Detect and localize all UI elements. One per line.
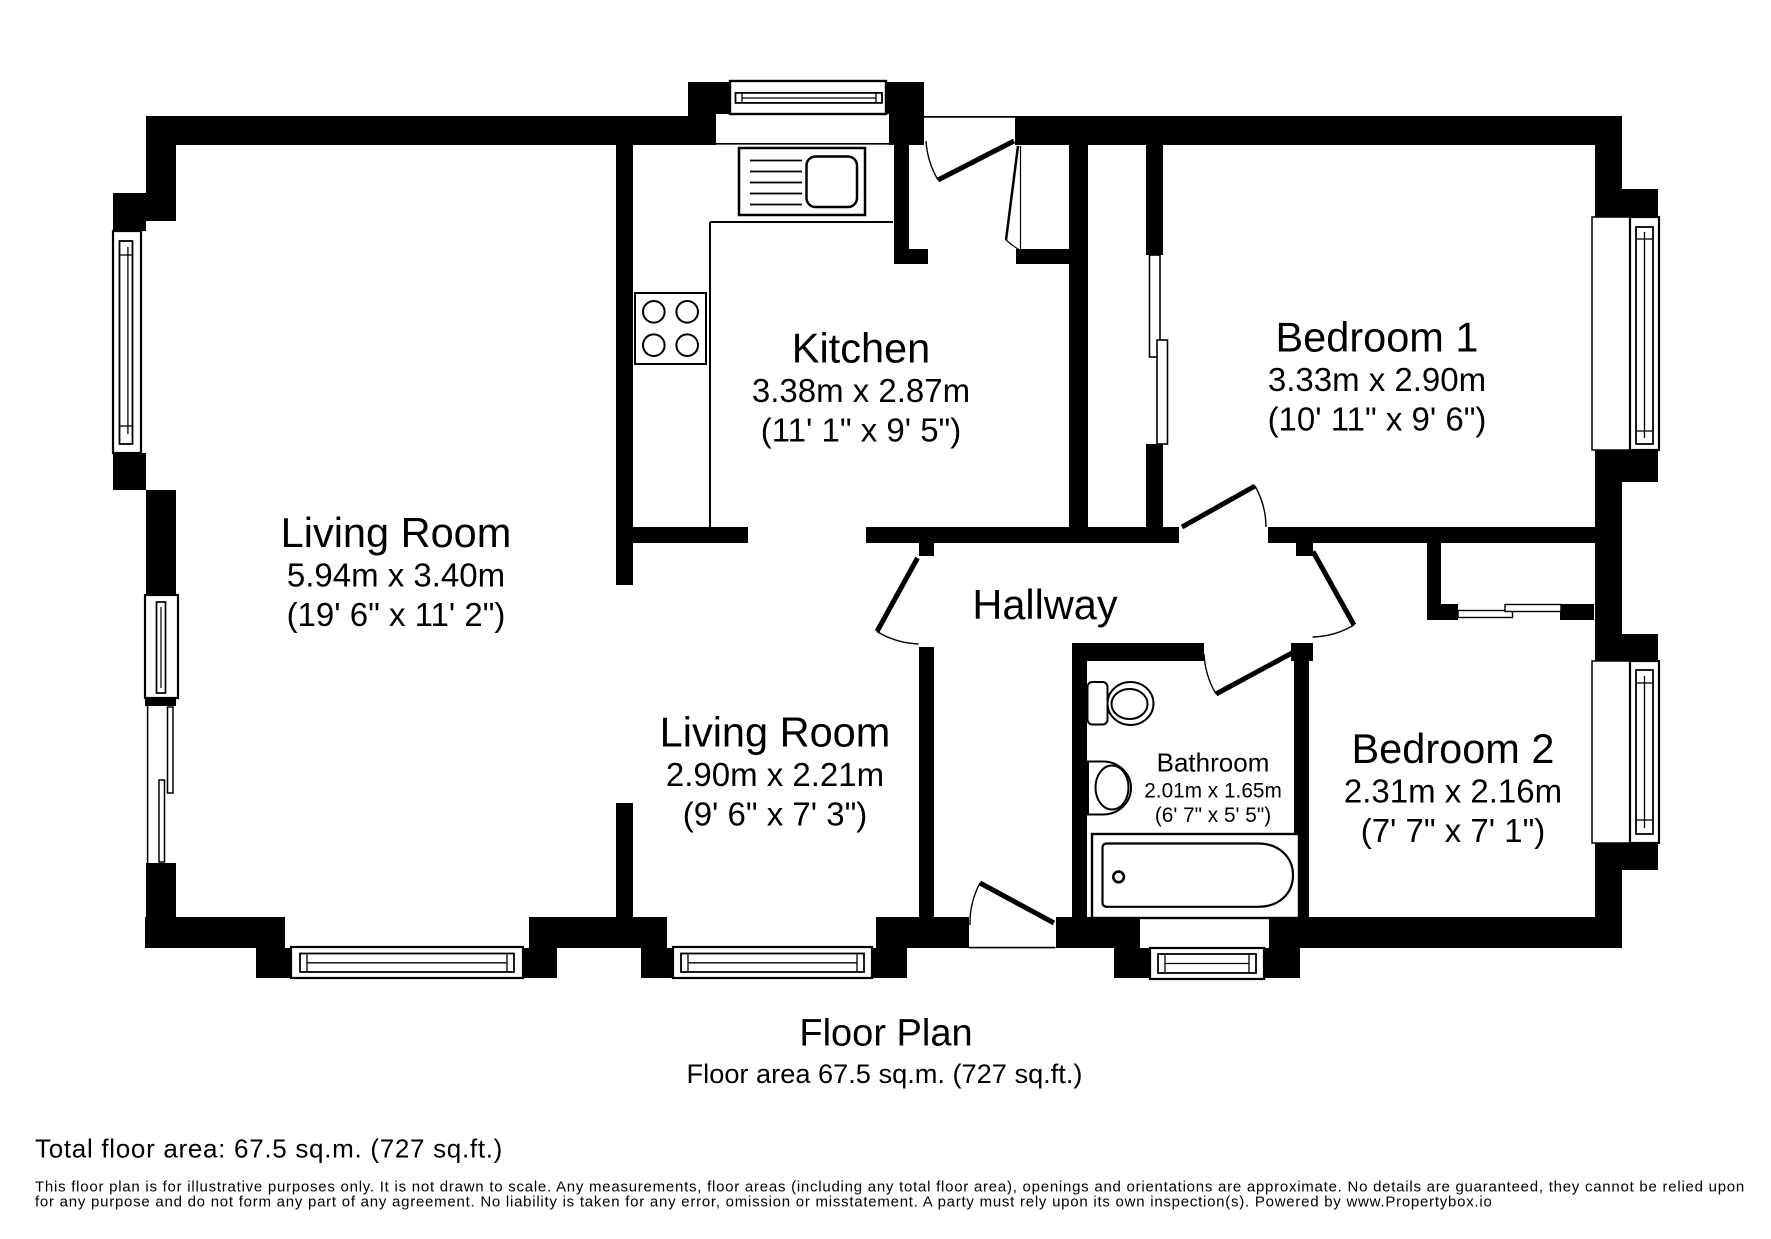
svg-text:Floor Plan: Floor Plan [799, 1013, 972, 1055]
svg-text:Kitchen: Kitchen [792, 325, 930, 372]
svg-text:5.94m x 3.40m: 5.94m x 3.40m [287, 557, 505, 594]
svg-text:Hallway: Hallway [972, 581, 1118, 628]
svg-text:Bathroom: Bathroom [1157, 747, 1270, 777]
svg-text:Total floor area: 67.5 sq.m. (: Total floor area: 67.5 sq.m. (727 sq.ft.… [35, 1134, 503, 1164]
svg-text:(19' 6" x 11' 2"): (19' 6" x 11' 2") [287, 596, 506, 633]
svg-text:(6' 7" x 5' 5"): (6' 7" x 5' 5") [1155, 804, 1271, 827]
svg-text:(9' 6" x 7' 3"): (9' 6" x 7' 3") [683, 795, 868, 832]
svg-text:Floor area 67.5 sq.m. (727 sq.: Floor area 67.5 sq.m. (727 sq.ft.) [687, 1058, 1083, 1089]
svg-text:3.38m x 2.87m: 3.38m x 2.87m [752, 372, 970, 409]
svg-text:(10' 11" x 9' 6"): (10' 11" x 9' 6") [1268, 401, 1487, 438]
svg-text:Bedroom 2: Bedroom 2 [1351, 725, 1554, 772]
svg-text:Bedroom 1: Bedroom 1 [1275, 314, 1478, 361]
svg-text:(11' 1" x 9' 5"): (11' 1" x 9' 5") [761, 412, 962, 449]
svg-text:(7' 7" x 7' 1"): (7' 7" x 7' 1") [1361, 812, 1546, 849]
svg-text:2.90m x 2.21m: 2.90m x 2.21m [666, 756, 884, 793]
svg-text:2.01m x 1.65m: 2.01m x 1.65m [1144, 779, 1282, 802]
svg-text:for any purpose and do not for: for any purpose and do not form any part… [35, 1193, 1493, 1210]
svg-text:Living Room: Living Room [281, 509, 512, 556]
svg-text:3.33m x 2.90m: 3.33m x 2.90m [1268, 361, 1486, 398]
svg-text:Living Room: Living Room [660, 708, 891, 755]
svg-text:2.31m x 2.16m: 2.31m x 2.16m [1344, 773, 1562, 810]
